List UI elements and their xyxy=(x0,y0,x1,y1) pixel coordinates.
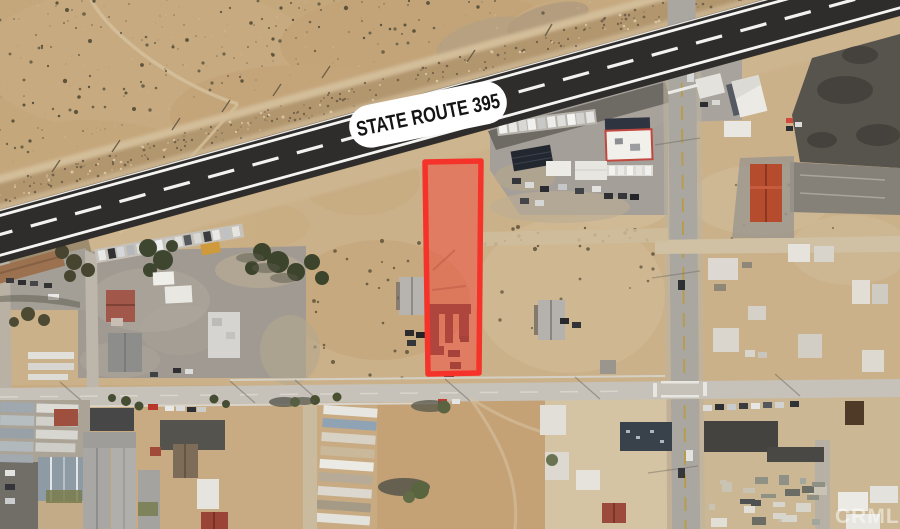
svg-text:CRMLS: CRMLS xyxy=(835,505,900,528)
